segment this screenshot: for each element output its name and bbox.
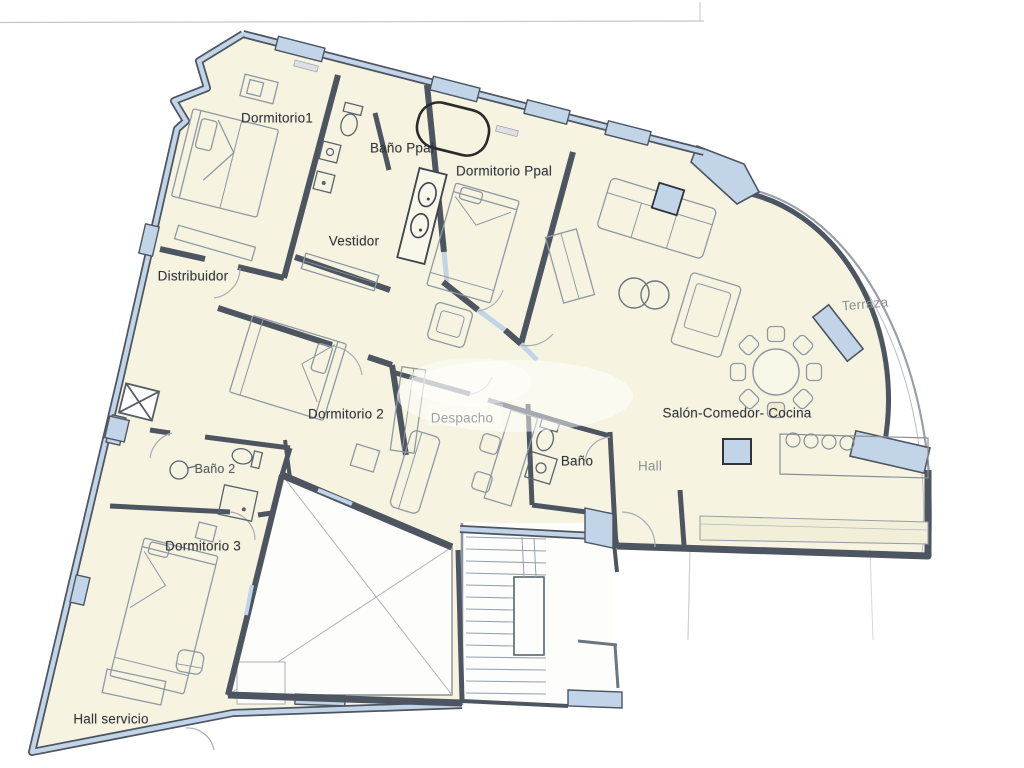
kitchen-island (723, 439, 751, 464)
floor-plan-drawing (0, 0, 1024, 768)
scan-artifacts (0, 2, 704, 23)
entry-threshold (568, 690, 622, 708)
room-label-hall-servicio: Hall servicio (73, 712, 148, 727)
door-arc-hall-servicio (186, 728, 214, 750)
room-label-vestidor: Vestidor (329, 234, 379, 249)
elevator-door-block (105, 416, 129, 442)
room-label-bano-2: Baño 2 (195, 462, 236, 476)
room-label-dormitorio-1: Dormitorio1 (241, 111, 313, 126)
room-label-bano-ppal: Baño Ppal (370, 141, 434, 156)
room-label-dormitorio-3: Dormitorio 3 (165, 539, 241, 554)
stair-core (514, 577, 544, 655)
room-label-dormitorio-ppal: Dormitorio Ppal (456, 164, 552, 179)
room-label-dormitorio-2: Dormitorio 2 (308, 407, 384, 422)
room-label-salon-comedor-cocina: Salón-Comedor- Cocina (662, 406, 811, 421)
room-label-bano: Baño (561, 454, 593, 469)
floor-plan-page: Dormitorio1 Baño Ppal Dormitorio Ppal Ve… (0, 0, 1024, 768)
room-label-distribuidor: Distribuidor (158, 269, 229, 284)
room-label-hall: Hall (638, 459, 662, 474)
room-label-despacho: Despacho (431, 411, 493, 426)
